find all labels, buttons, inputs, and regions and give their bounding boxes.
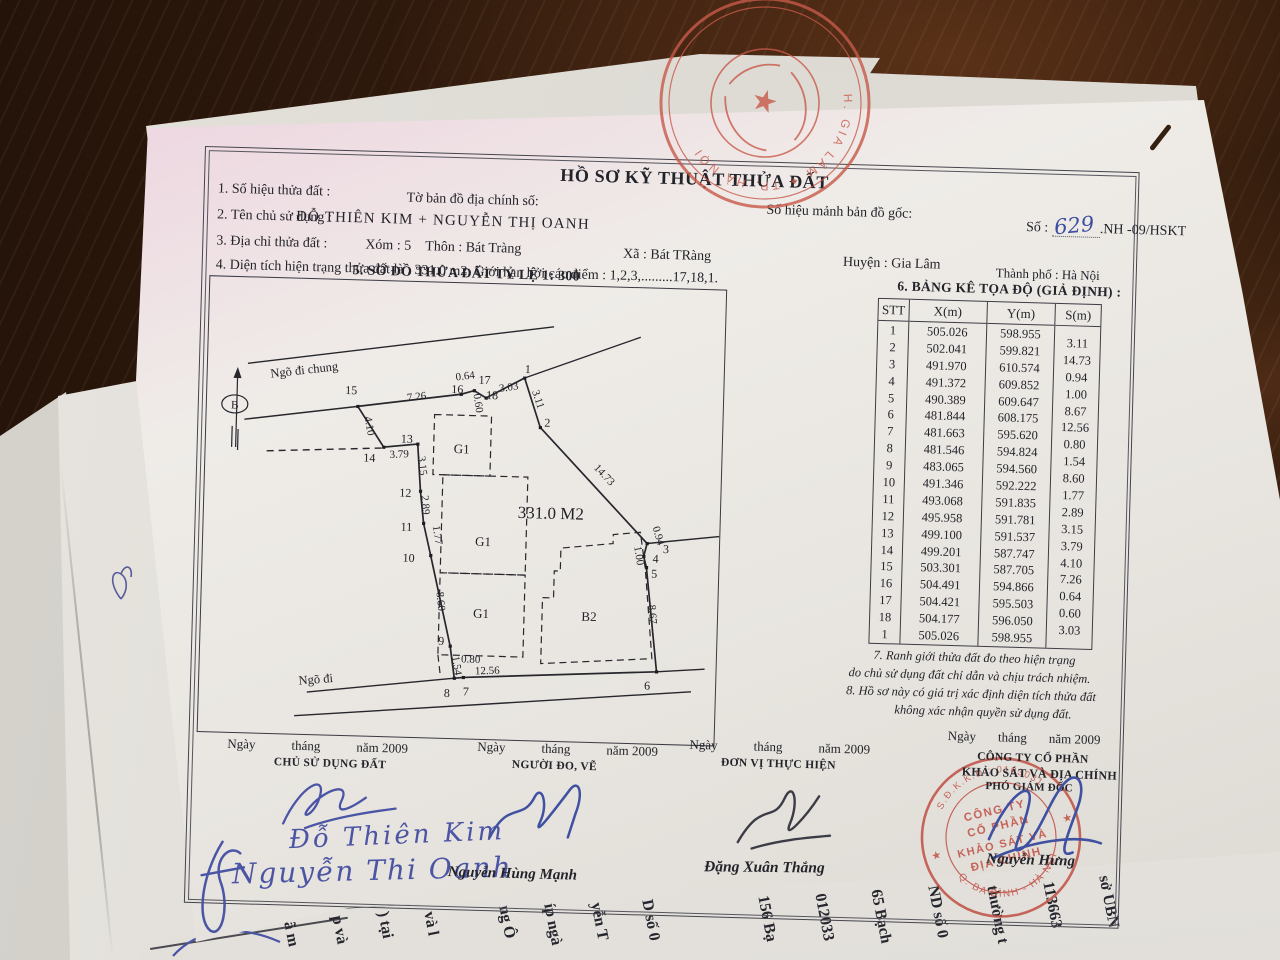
table-cell-y: 596.050 [978,612,1046,631]
field-commune: Xã : Bát TRàng [623,247,711,265]
table-cell-x: 481.663 [906,424,983,443]
underlying-text-fragment: và l [419,910,441,937]
table-cell-x: 481.844 [906,407,983,426]
table-cell-x: 491.346 [904,475,981,494]
table-cell-stt: 15 [871,558,901,576]
svg-text:2: 2 [544,416,550,430]
svg-text:0.94: 0.94 [650,525,667,547]
table-cell-x: 495.958 [904,508,981,527]
table-cell-x: 503.301 [902,559,979,578]
vertex-markers [349,372,667,686]
document-frame: HỒ SƠ KỸ THUẬT THỬA ĐẤT 1. Số hiệu thửa … [184,146,1140,929]
table-cell-stt: 11 [873,491,903,509]
table-cell-y: 598.955 [986,325,1054,344]
table-cell-y: 594.560 [983,460,1051,479]
svg-text:8: 8 [444,686,450,700]
date-line-unit: Ngàythángnăm 2009 [689,737,870,758]
table-cell-x: 504.421 [901,593,978,612]
header-s: S(m) [1056,304,1101,327]
svg-text:7: 7 [463,684,469,698]
table-cell-s: 1.00 [1053,385,1098,403]
svg-text:0.60: 0.60 [471,393,486,414]
table-cell-s: 0.64 [1048,588,1093,606]
table-cell-s: 8.60 [1051,470,1096,488]
header-stt: STT [878,299,908,322]
road-top-right-extension [525,334,641,381]
so-dotted-line: 629 [1051,221,1100,238]
table-cell-x: 504.491 [902,576,979,595]
svg-text:1.00: 1.00 [631,545,646,566]
table-cell-x: 504.177 [901,610,978,629]
role-surveyor: NGƯỜI ĐO, VẼ [512,759,597,773]
north-label: B [231,399,239,411]
table-cell-stt: 3 [877,356,907,374]
svg-text:11: 11 [400,520,412,534]
table-cell-stt: 4 [876,373,906,391]
photo-of-documents: sở UBN113663thường tND số 065 Bạch012033… [0,0,1280,960]
table-cell-s: 0.94 [1054,369,1099,387]
plot-diagram: Ngõ đi chung Ngõ đi B 331.0 M2 G1 G1 G1 … [197,275,726,744]
name-dang-xuan-thang: Đặng Xuân Thắng [704,858,825,877]
field-owner-value: ĐỖ THIÊN KIM + NGUYỄN THỊ OANH [296,209,590,234]
table-cell-stt: 2 [877,339,907,357]
table-cell-stt: 13 [872,524,902,542]
table-cell-y: 591.781 [981,511,1049,530]
official-round-stamp: H. GIA LÂM ✦ TP. HÀ NỘI ★ [650,0,880,218]
field-so: Số : 629.NH -09/HSKT [1026,212,1187,240]
table-cell-y: 591.537 [981,528,1049,547]
table-cell-y: 595.620 [984,426,1052,445]
table-cell-y: 610.574 [985,359,1053,378]
table-cell-stt: 16 [871,575,901,593]
svg-text:8.60: 8.60 [433,591,447,612]
table-cell-y: 591.835 [982,494,1050,513]
table-cell-s: 8.67 [1053,402,1098,420]
building-label-g1a: G1 [453,441,469,456]
svg-text:1.54: 1.54 [449,655,464,676]
name-nguyen-hung: Nguyễn Hưng [986,851,1075,870]
table-cell-y: 608.175 [984,409,1052,428]
svg-text:10: 10 [402,551,414,565]
plot-diagram-svg: Ngõ đi chung Ngõ đi B 331.0 M2 G1 G1 G1 … [197,275,728,746]
svg-text:12: 12 [399,486,411,500]
table-cell-s: 1.54 [1051,453,1096,471]
building-label-g1b: G1 [475,534,491,549]
svg-text:13: 13 [401,432,413,446]
table-cell-x: 490.389 [907,390,984,409]
svg-text:3.03: 3.03 [498,380,519,395]
table-cell-stt: 6 [876,406,906,424]
table-cell-s: 0.80 [1052,436,1097,454]
svg-text:3.11: 3.11 [529,389,546,411]
handwritten-number: 629 [1051,211,1101,239]
signature-surveyor-stroke [481,775,595,856]
table-cell-y: 609.647 [984,392,1052,411]
svg-text:5: 5 [651,567,657,581]
table-cell-s: 0.60 [1047,605,1092,623]
svg-text:9: 9 [438,634,444,648]
table-cell-s: 3.79 [1049,537,1094,555]
building-label-g1c: G1 [473,606,489,621]
svg-text:6: 6 [644,678,650,692]
header-y: Y(m) [987,302,1055,326]
field-hamlet: Xóm : 5 [365,238,411,255]
svg-text:0.64: 0.64 [455,369,476,383]
table-cell-x: 491.970 [908,356,985,375]
road-bottom-label: Ngõ đi [298,671,334,688]
road-bottom-right-extension [656,668,704,673]
table-cell-y: 595.503 [979,595,1047,614]
name-nguyen-hung-manh: Nguyễn Hùng Mạnh [448,864,578,885]
so-label: Số : [1026,220,1049,236]
table-cell-stt: 9 [874,457,904,475]
table-cell-x: 499.100 [903,525,980,544]
table-cell-stt: 1 [878,322,908,340]
table-cell-stt: 7 [875,423,905,441]
svg-text:8.67: 8.67 [645,604,658,625]
table-cell-stt: 10 [874,474,904,492]
area-label: 331.0 M2 [518,503,585,524]
table-cell-s: 1.77 [1051,487,1096,505]
svg-text:14: 14 [363,451,375,465]
road-top-left-extension [244,403,357,422]
date-line-owner: Ngàythángnăm 2009 [227,736,408,757]
svg-text:14.73: 14.73 [591,462,617,489]
role-unit: ĐƠN VỊ THỰC HIỆN [721,757,836,772]
field-address-label: 3. Địa chỉ thửa đất : [216,233,327,252]
table-cell-s: 3.11 [1055,335,1100,353]
table-cell-x: 499.201 [903,542,980,561]
road-top-label: Ngõ đi chung [270,359,340,381]
table-cell-x: 502.041 [908,340,985,359]
col-y: Y(m)598.955599.821610.574609.852609.6476… [977,302,1055,648]
svg-text:17: 17 [478,373,490,387]
table-cell-s: 4.10 [1049,554,1094,572]
parcel-boundary [350,373,664,683]
svg-text:16: 16 [451,382,463,396]
field-village: Thôn : Bát Tràng [425,239,521,258]
svg-text:4: 4 [652,552,658,566]
table-cell-y: 594.866 [979,578,1047,597]
point-numbers: 1 2 3 4 5 6 7 8 9 10 11 12 13 14 [337,357,674,706]
date-line-company: Ngàythángnăm 2009 [948,728,1101,748]
table-cell-x: 505.026 [909,323,986,342]
table-cell-stt: 8 [875,440,905,458]
table-cell-s: 3.03 [1047,622,1092,640]
table-cell-s: 3.15 [1050,521,1095,539]
building-label-b2: B2 [581,609,597,624]
table-cell-s: 14.73 [1054,352,1099,370]
table-cell-y: 592.222 [982,477,1050,496]
table-cell-x: 491.372 [907,373,984,392]
table-cell-y: 594.824 [983,443,1051,462]
table-cell-stt: 18 [870,609,900,627]
table-cell-x: 493.068 [904,492,981,511]
table-cell-x: 481.546 [905,441,982,460]
note-8-line2: không xác nhận quyền sử dụng đất. [850,701,1115,723]
table-cell-stt: 12 [873,508,903,526]
table-cell-x: 505.026 [900,627,977,646]
table-cell-y: 587.705 [980,561,1048,580]
svg-text:1.77: 1.77 [430,525,445,546]
table-cell-y: 609.852 [985,376,1053,395]
table-cell-stt: 14 [872,541,902,559]
svg-text:4.10: 4.10 [362,416,377,438]
svg-text:3.79: 3.79 [389,448,409,461]
stamp-star-left: ★ [930,849,944,863]
signature-unit-stroke [731,778,845,861]
header-x: X(m) [909,300,986,324]
table-cell-y: 599.821 [986,342,1054,361]
svg-text:0.80: 0.80 [461,653,481,666]
table-cell-stt: 1 [869,626,899,644]
svg-text:18: 18 [486,388,498,402]
col-s: S(m)3.1114.730.941.008.6712.560.801.548.… [1046,304,1101,649]
svg-text:2.89: 2.89 [418,495,431,516]
table-cell-y: 598.955 [978,629,1046,648]
underlying-text-fragment: ) tại [373,910,396,940]
so-suffix: .NH -09/HSKT [1100,222,1187,239]
svg-text:7.26: 7.26 [406,390,427,404]
coord-table: STT1234567891011121314151617181 X(m)505.… [868,298,1102,650]
table-cell-stt: 5 [876,389,906,407]
field-district: Huyện : Gia Lâm [843,255,941,274]
svg-text:15: 15 [345,383,357,397]
table-cell-s: 2.89 [1050,504,1095,522]
field-map-sheet: Tờ bản đồ địa chính số: [406,191,539,211]
table-cell-x: 483.065 [905,458,982,477]
top-stamp-star: ★ [746,81,783,121]
col-x: X(m)505.026502.041491.970491.372490.3894… [899,300,986,646]
table-cell-s: 12.56 [1052,419,1097,437]
svg-text:1: 1 [525,362,531,376]
table-cell-y: 587.747 [980,544,1048,563]
svg-text:12.56: 12.56 [475,665,501,678]
field-parcel-number: 1. Số hiệu thửa đất : [218,181,331,200]
table-cell-stt: 17 [870,592,900,610]
table-cell-s: 7.26 [1048,571,1093,589]
svg-text:3.15: 3.15 [415,456,429,477]
pen-doodle [106,560,140,608]
